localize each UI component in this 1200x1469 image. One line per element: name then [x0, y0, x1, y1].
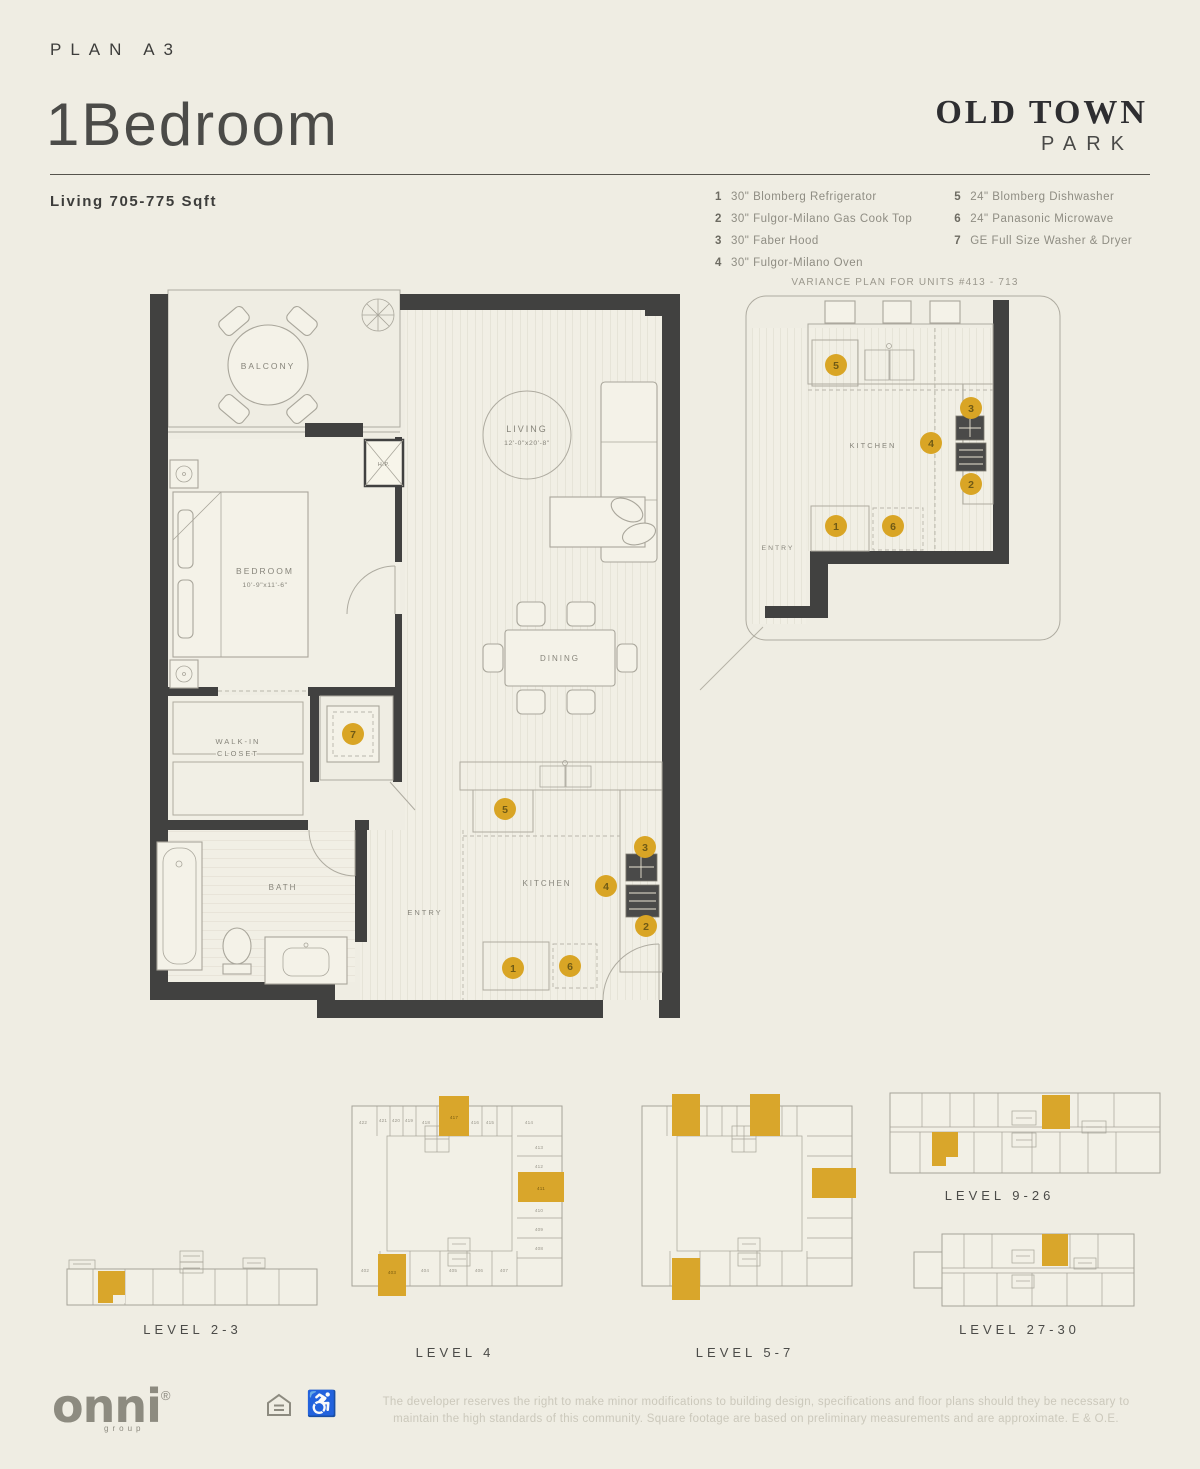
appliance-marker-1: 1 [502, 957, 524, 979]
legend-item: 524" Blomberg Dishwasher [954, 186, 1132, 208]
sqft-line: Living 705-775 Sqft [50, 193, 217, 210]
legal-disclaimer: The developer reserves the right to make… [350, 1394, 1162, 1428]
keyplan-level-2-3 [55, 1245, 330, 1320]
living-dim: 12'-0"x20'-8" [504, 440, 550, 447]
highlighted-unit [1042, 1234, 1068, 1266]
legend-column-left: 130" Blomberg Refrigerator 230" Fulgor-M… [715, 186, 912, 274]
registered-mark: ® [161, 1388, 171, 1403]
plan-code: PLAN A3 [50, 40, 182, 60]
kitchen-label: KITCHEN [522, 879, 571, 888]
dining-chair [617, 644, 637, 672]
level-4-label: LEVEL 4 [332, 1345, 578, 1360]
laundry-closet: 7 [320, 696, 393, 780]
main-floorplan: BALCONY LIVING 12'-0"x20'-8" H.P. [115, 282, 715, 1047]
svg-text:3: 3 [968, 403, 974, 415]
svg-text:2: 2 [643, 921, 649, 933]
highlighted-unit [1042, 1095, 1070, 1129]
svg-text:418: 418 [422, 1120, 431, 1125]
svg-text:5: 5 [502, 804, 508, 816]
svg-text:403: 403 [388, 1270, 397, 1275]
brand-logo: OLD TOWN PARK [935, 94, 1148, 156]
toilet-tank [223, 964, 251, 974]
svg-text:1: 1 [510, 963, 516, 975]
vanity [265, 937, 347, 984]
equal-housing-icon [266, 1393, 292, 1417]
entry-label: ENTRY [407, 908, 442, 917]
variance-marker-1: 1 [825, 515, 847, 537]
legend-column-right: 524" Blomberg Dishwasher 624" Panasonic … [954, 186, 1132, 274]
level-5-7-label: LEVEL 5-7 [622, 1345, 868, 1360]
appliance-marker-7: 7 [342, 723, 364, 745]
svg-text:412: 412 [535, 1164, 544, 1169]
legend-item: 330" Faber Hood [715, 230, 912, 252]
brand-logo-bottom: PARK [935, 133, 1148, 156]
highlighted-unit [672, 1094, 700, 1136]
pillow [178, 580, 193, 638]
svg-text:407: 407 [500, 1268, 509, 1273]
dining-chair [483, 644, 503, 672]
highlighted-unit [378, 1254, 406, 1296]
developer-logo: onni® group [52, 1383, 170, 1433]
svg-text:5: 5 [833, 360, 839, 372]
svg-text:410: 410 [535, 1208, 544, 1213]
accessibility-icons: ♿ [266, 1392, 337, 1417]
keyplan-level-27-30 [902, 1222, 1172, 1317]
living-label: LIVING [506, 424, 548, 434]
brand-logo-top: OLD TOWN [935, 94, 1148, 132]
keyplan-level-4: 422 421 420 419 418 417 416 415 414 413 … [332, 1088, 578, 1320]
svg-text:406: 406 [475, 1268, 484, 1273]
hp-label: H.P. [378, 462, 390, 468]
dining-label: DINING [540, 654, 580, 663]
legend-item: 7GE Full Size Washer & Dryer [954, 230, 1132, 252]
level-9-26-label: LEVEL 9-26 [862, 1188, 1137, 1203]
bedroom-dim: 10'-9"x11'-6" [242, 582, 287, 589]
highlighted-unit [812, 1168, 856, 1198]
keyplan-level-9-26 [882, 1085, 1172, 1185]
dining-chair [517, 690, 545, 714]
nightstand [170, 660, 198, 688]
svg-text:1: 1 [833, 521, 839, 533]
appliance-marker-4: 4 [595, 875, 617, 897]
walkin-label-1: WALK-IN [216, 737, 261, 746]
variance-entry-label: ENTRY [762, 545, 795, 552]
svg-text:422: 422 [359, 1120, 368, 1125]
wheelchair-accessible-icon: ♿ [306, 1392, 337, 1417]
gas-cooktop [626, 854, 657, 881]
variance-marker-6: 6 [882, 515, 904, 537]
svg-text:4: 4 [928, 438, 934, 450]
svg-text:408: 408 [535, 1246, 544, 1251]
floorplan-brochure-page: PLAN A3 1Bedroom Living 705-775 Sqft OLD… [0, 0, 1200, 1469]
legend-item: 130" Blomberg Refrigerator [715, 186, 912, 208]
tree-icon [362, 299, 394, 331]
svg-text:413: 413 [535, 1145, 544, 1150]
legend-item: 624" Panasonic Microwave [954, 208, 1132, 230]
svg-text:411: 411 [537, 1186, 545, 1191]
appliance-marker-3: 3 [634, 836, 656, 858]
variance-marker-5: 5 [825, 354, 847, 376]
svg-text:417: 417 [450, 1115, 459, 1120]
page-title: 1Bedroom [46, 90, 339, 159]
appliance-legend: 130" Blomberg Refrigerator 230" Fulgor-M… [715, 186, 1132, 274]
bedroom-label: BEDROOM [236, 566, 294, 576]
highlighted-unit [750, 1094, 780, 1136]
variance-marker-3: 3 [960, 397, 982, 419]
svg-text:421: 421 [379, 1118, 388, 1123]
toilet [223, 928, 251, 964]
legend-item: 230" Fulgor-Milano Gas Cook Top [715, 208, 912, 230]
svg-text:420: 420 [392, 1118, 401, 1123]
variance-entry-floor [752, 328, 806, 624]
svg-text:2: 2 [968, 479, 974, 491]
hp-closet: H.P. [365, 440, 403, 486]
svg-text:4: 4 [603, 881, 609, 893]
appliance-marker-6: 6 [559, 955, 581, 977]
keyplan-level-5-7 [622, 1088, 868, 1320]
dining-chair [567, 602, 595, 626]
nightstand [170, 460, 198, 488]
balcony-furniture: BALCONY [217, 299, 394, 426]
svg-text:405: 405 [449, 1268, 458, 1273]
svg-text:3: 3 [642, 842, 648, 854]
bedroom: BEDROOM 10'-9"x11'-6" [170, 460, 308, 688]
svg-text:415: 415 [486, 1120, 495, 1125]
variance-plan-title: VARIANCE PLAN FOR UNITS #413 - 713 [738, 277, 1072, 288]
svg-text:416: 416 [471, 1120, 480, 1125]
svg-text:402: 402 [361, 1268, 370, 1273]
balcony-label: BALCONY [241, 361, 296, 371]
level-2-3-label: LEVEL 2-3 [55, 1322, 330, 1337]
variance-marker-4: 4 [920, 432, 942, 454]
highlighted-unit [672, 1258, 700, 1300]
header-divider [50, 174, 1150, 175]
svg-text:414: 414 [525, 1120, 534, 1125]
bath-label: BATH [269, 883, 298, 892]
pillow [178, 510, 193, 568]
level-27-30-label: LEVEL 27-30 [882, 1322, 1157, 1337]
walkin-label-2: CLOSET [217, 749, 259, 758]
appliance-marker-2: 2 [635, 915, 657, 937]
dining-chair [517, 602, 545, 626]
variance-marker-2: 2 [960, 473, 982, 495]
dining-chair [567, 690, 595, 714]
svg-text:6: 6 [890, 521, 896, 533]
svg-text:409: 409 [535, 1227, 544, 1232]
svg-text:7: 7 [350, 729, 356, 741]
appliance-marker-5: 5 [494, 798, 516, 820]
legend-item: 430" Fulgor-Milano Oven [715, 252, 912, 274]
svg-text:419: 419 [405, 1118, 414, 1123]
svg-text:404: 404 [421, 1268, 430, 1273]
variance-floorplan: KITCHEN ENTRY 5 3 4 2 1 6 [738, 288, 1072, 656]
svg-text:6: 6 [567, 961, 573, 973]
variance-kitchen-label: KITCHEN [850, 441, 897, 450]
